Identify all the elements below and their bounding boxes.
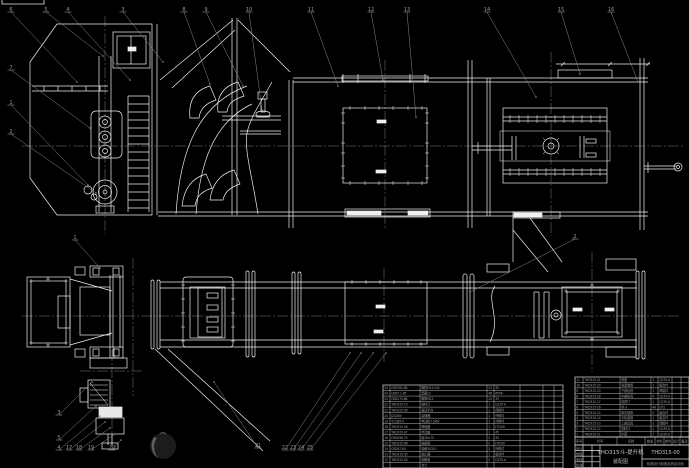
svg-text:减速器: 减速器 xyxy=(421,413,431,418)
svg-text:14: 14 xyxy=(384,447,388,451)
svg-text:传动轴: 传动轴 xyxy=(421,429,430,434)
svg-text:名称: 名称 xyxy=(628,439,635,444)
svg-text:GB1096-79: GB1096-79 xyxy=(391,436,407,440)
svg-text:设计: 设计 xyxy=(576,446,583,451)
svg-text:THD315-16: THD315-16 xyxy=(583,405,600,409)
svg-text:中部机壳: 中部机壳 xyxy=(621,393,634,398)
svg-text:65Mn: 65Mn xyxy=(495,392,503,396)
svg-text:25: 25 xyxy=(307,445,313,451)
svg-text:料斗: 料斗 xyxy=(621,404,627,409)
svg-text:轴承座: 轴承座 xyxy=(421,440,431,445)
svg-text:组合件: 组合件 xyxy=(659,383,669,388)
svg-text:1: 1 xyxy=(488,414,490,418)
svg-text:Q235-A: Q235-A xyxy=(659,394,671,398)
svg-text:电动机7.5kW: 电动机7.5kW xyxy=(421,418,440,423)
svg-text:22: 22 xyxy=(384,403,388,407)
svg-text:2: 2 xyxy=(488,441,490,445)
svg-text:进料口: 进料口 xyxy=(421,402,430,407)
svg-text:1: 1 xyxy=(652,427,654,431)
svg-text:3: 3 xyxy=(121,7,124,13)
svg-text:HT200: HT200 xyxy=(495,425,505,429)
svg-text:12: 12 xyxy=(368,7,374,13)
svg-text:组合件: 组合件 xyxy=(659,410,669,415)
svg-text:2: 2 xyxy=(488,458,490,462)
svg-text:35: 35 xyxy=(495,397,499,401)
svg-text:2: 2 xyxy=(573,234,576,240)
svg-text:THD315-20: THD315-20 xyxy=(583,384,600,388)
svg-text:审核: 审核 xyxy=(576,457,583,462)
svg-text:1: 1 xyxy=(488,403,490,407)
svg-text:5: 5 xyxy=(57,435,60,441)
svg-text:4: 4 xyxy=(57,445,60,451)
svg-text:GB297-84: GB297-84 xyxy=(391,447,406,451)
svg-text:组合件: 组合件 xyxy=(495,451,505,456)
svg-text:20: 20 xyxy=(109,445,115,451)
bucket-elevator-assembly-drawing: 6543891011121314151671212354171819202122… xyxy=(0,0,689,468)
svg-text:9: 9 xyxy=(204,7,207,13)
svg-text:观察窗: 观察窗 xyxy=(421,457,430,462)
svg-text:键16×70: 键16×70 xyxy=(421,435,434,440)
svg-text:制图: 制图 xyxy=(576,451,582,456)
drawing-subtitle: 装配图 xyxy=(613,458,628,465)
svg-text:驱动平台: 驱动平台 xyxy=(421,407,433,412)
svg-text:下部区段: 下部区段 xyxy=(621,388,634,393)
svg-text:护罩: 护罩 xyxy=(621,432,627,437)
svg-text:45: 45 xyxy=(495,436,499,440)
svg-text:1: 1 xyxy=(488,425,490,429)
svg-text:17: 17 xyxy=(66,445,72,451)
svg-text:11: 11 xyxy=(308,7,314,13)
svg-text:13: 13 xyxy=(404,7,410,13)
svg-text:轴承30310: 轴承30310 xyxy=(421,446,436,451)
svg-text:2: 2 xyxy=(488,436,490,440)
svg-text:17: 17 xyxy=(384,430,388,434)
svg-text:Q235-A: Q235-A xyxy=(659,433,671,437)
svg-text:THD315-06: THD315-06 xyxy=(390,441,407,445)
svg-text:7: 7 xyxy=(9,65,12,71)
bom-row: 6THD315-16料斗46DT2 xyxy=(576,404,665,409)
svg-text:1: 1 xyxy=(488,452,490,456)
svg-text:1: 1 xyxy=(652,400,654,404)
svg-text:Y132M-4: Y132M-4 xyxy=(391,419,404,423)
svg-text:1: 1 xyxy=(488,408,490,412)
svg-text:24: 24 xyxy=(488,397,492,401)
svg-text:2: 2 xyxy=(9,129,12,135)
svg-text:7: 7 xyxy=(576,400,578,404)
svg-text:GB6170-86: GB6170-86 xyxy=(391,397,407,401)
svg-text:张紧装置: 张紧装置 xyxy=(621,383,633,388)
svg-text:Q235-A: Q235-A xyxy=(659,378,671,382)
svg-text:2: 2 xyxy=(488,447,490,451)
drawing-number: THD315-00 xyxy=(650,450,679,456)
svg-text:Q235-A: Q235-A xyxy=(495,458,507,462)
svg-text:THD315-09: THD315-09 xyxy=(390,408,407,412)
svg-text:Q235-A: Q235-A xyxy=(659,427,671,431)
svg-text:外购件: 外购件 xyxy=(495,418,505,423)
svg-text:2: 2 xyxy=(576,427,578,431)
svg-text:材料: 材料 xyxy=(656,439,663,444)
svg-text:13: 13 xyxy=(384,452,388,456)
bom-row: 合计 xyxy=(421,463,428,468)
svg-text:8: 8 xyxy=(182,7,185,13)
svg-text:20: 20 xyxy=(384,414,388,418)
svg-text:24: 24 xyxy=(298,445,304,451)
svg-text:合计: 合计 xyxy=(421,463,428,468)
svg-text:外购件: 外购件 xyxy=(495,413,505,418)
svg-text:螺母M12: 螺母M12 xyxy=(421,396,433,401)
svg-text:23: 23 xyxy=(384,397,388,401)
svg-text:5: 5 xyxy=(576,411,578,415)
svg-text:THD315-05: THD315-05 xyxy=(390,452,407,456)
svg-text:牵引链条: 牵引链条 xyxy=(621,410,634,415)
svg-text:45: 45 xyxy=(495,430,499,434)
svg-text:3: 3 xyxy=(576,422,578,426)
svg-text:THD315-18: THD315-18 xyxy=(583,394,600,398)
svg-text:23: 23 xyxy=(290,445,296,451)
svg-text:DT2: DT2 xyxy=(659,405,665,409)
svg-text:单件: 单件 xyxy=(665,439,672,444)
svg-text:1: 1 xyxy=(652,422,654,426)
svg-text:THD315-13: THD315-13 xyxy=(583,422,600,426)
drawing-title: THD315斗-提升机 xyxy=(596,448,644,456)
svg-text:4: 4 xyxy=(652,394,654,398)
svg-text:16: 16 xyxy=(384,436,388,440)
svg-text:1: 1 xyxy=(73,235,76,241)
svg-text:THD315-12: THD315-12 xyxy=(583,427,600,431)
svg-text:底座: 底座 xyxy=(621,377,628,382)
svg-text:THD315-11: THD315-11 xyxy=(583,433,600,437)
svg-text:GB5782-86: GB5782-86 xyxy=(391,386,407,390)
svg-text:21: 21 xyxy=(255,443,261,449)
organization-name: 机械设计制造及其自动化 xyxy=(647,461,685,466)
svg-text:THD315-19: THD315-19 xyxy=(583,389,600,393)
svg-text:18: 18 xyxy=(76,445,82,451)
svg-text:48: 48 xyxy=(488,392,492,396)
svg-text:3: 3 xyxy=(57,410,60,416)
svg-text:1: 1 xyxy=(652,378,654,382)
svg-text:1: 1 xyxy=(576,433,578,437)
svg-text:10: 10 xyxy=(246,7,252,13)
svg-text:THD315-04: THD315-04 xyxy=(390,458,407,462)
svg-text:代号: 代号 xyxy=(597,439,603,444)
svg-text:螺栓M12×45: 螺栓M12×45 xyxy=(421,385,439,390)
svg-text:卸料口: 卸料口 xyxy=(621,426,630,431)
svg-text:14: 14 xyxy=(484,7,490,13)
svg-text:Q235-A: Q235-A xyxy=(495,403,507,407)
svg-text:15: 15 xyxy=(384,441,388,445)
svg-text:GB97.1-85: GB97.1-85 xyxy=(391,392,406,396)
cad-drawing-canvas: 6543891011121314151671212354171819202122… xyxy=(0,0,689,468)
svg-text:THD315-21: THD315-21 xyxy=(583,378,600,382)
svg-text:9: 9 xyxy=(576,389,578,393)
svg-text:21: 21 xyxy=(384,408,388,412)
svg-text:1: 1 xyxy=(488,419,490,423)
svg-text:11: 11 xyxy=(576,378,580,382)
svg-text:THD315-14: THD315-14 xyxy=(583,416,600,420)
svg-text:18: 18 xyxy=(384,425,388,429)
svg-text:15: 15 xyxy=(558,7,564,13)
svg-text:35: 35 xyxy=(495,386,499,390)
svg-text:上部区段: 上部区段 xyxy=(621,421,634,426)
svg-text:6: 6 xyxy=(576,405,578,409)
svg-text:组合件: 组合件 xyxy=(659,415,669,420)
svg-text:19: 19 xyxy=(88,445,94,451)
svg-text:总计: 总计 xyxy=(673,439,680,444)
svg-text:22: 22 xyxy=(282,445,288,451)
svg-text:1: 1 xyxy=(9,100,12,106)
svg-text:序号: 序号 xyxy=(576,439,582,444)
svg-text:4: 4 xyxy=(576,416,578,420)
svg-text:THD315-08: THD315-08 xyxy=(390,425,407,429)
svg-text:12: 12 xyxy=(384,458,388,462)
svg-text:THD315-15: THD315-15 xyxy=(583,411,600,415)
svg-text:6: 6 xyxy=(9,7,12,13)
svg-text:1: 1 xyxy=(652,384,654,388)
svg-text:JZQ400: JZQ400 xyxy=(390,414,402,418)
svg-text:焊接件: 焊接件 xyxy=(495,407,505,412)
svg-text:5: 5 xyxy=(44,7,47,13)
svg-text:备注: 备注 xyxy=(681,439,688,444)
svg-text:批准: 批准 xyxy=(576,463,583,468)
svg-text:外购件: 外购件 xyxy=(495,446,505,451)
svg-text:25: 25 xyxy=(384,386,388,390)
svg-text:Q235-A: Q235-A xyxy=(659,400,671,404)
svg-text:1: 1 xyxy=(652,416,654,420)
svg-text:24: 24 xyxy=(488,386,492,390)
svg-text:THD315-17: THD315-17 xyxy=(583,400,600,404)
svg-text:检视门: 检视门 xyxy=(621,399,630,404)
svg-text:2: 2 xyxy=(652,411,654,415)
svg-text:4: 4 xyxy=(66,7,69,13)
svg-text:1: 1 xyxy=(652,389,654,393)
svg-text:10: 10 xyxy=(576,384,580,388)
door-handle xyxy=(376,170,386,173)
svg-text:THD315-07: THD315-07 xyxy=(390,430,407,434)
door-handle xyxy=(377,120,386,123)
svg-text:46: 46 xyxy=(652,405,656,409)
svg-text:焊接件: 焊接件 xyxy=(659,421,669,426)
svg-text:垫圈12: 垫圈12 xyxy=(421,391,431,396)
svg-text:19: 19 xyxy=(384,419,388,423)
svg-text:HT200: HT200 xyxy=(495,441,505,445)
svg-text:头轮装置: 头轮装置 xyxy=(621,415,633,420)
svg-text:8: 8 xyxy=(576,394,578,398)
svg-text:数量: 数量 xyxy=(647,439,654,444)
svg-text:24: 24 xyxy=(384,392,388,396)
svg-text:16: 16 xyxy=(608,7,614,13)
svg-text:1: 1 xyxy=(488,430,490,434)
svg-text:焊接件: 焊接件 xyxy=(659,388,669,393)
svg-text:1: 1 xyxy=(652,433,654,437)
svg-text:联轴器: 联轴器 xyxy=(421,424,431,429)
svg-text:逆止器: 逆止器 xyxy=(421,451,431,456)
svg-text:THD315-10: THD315-10 xyxy=(390,403,407,407)
